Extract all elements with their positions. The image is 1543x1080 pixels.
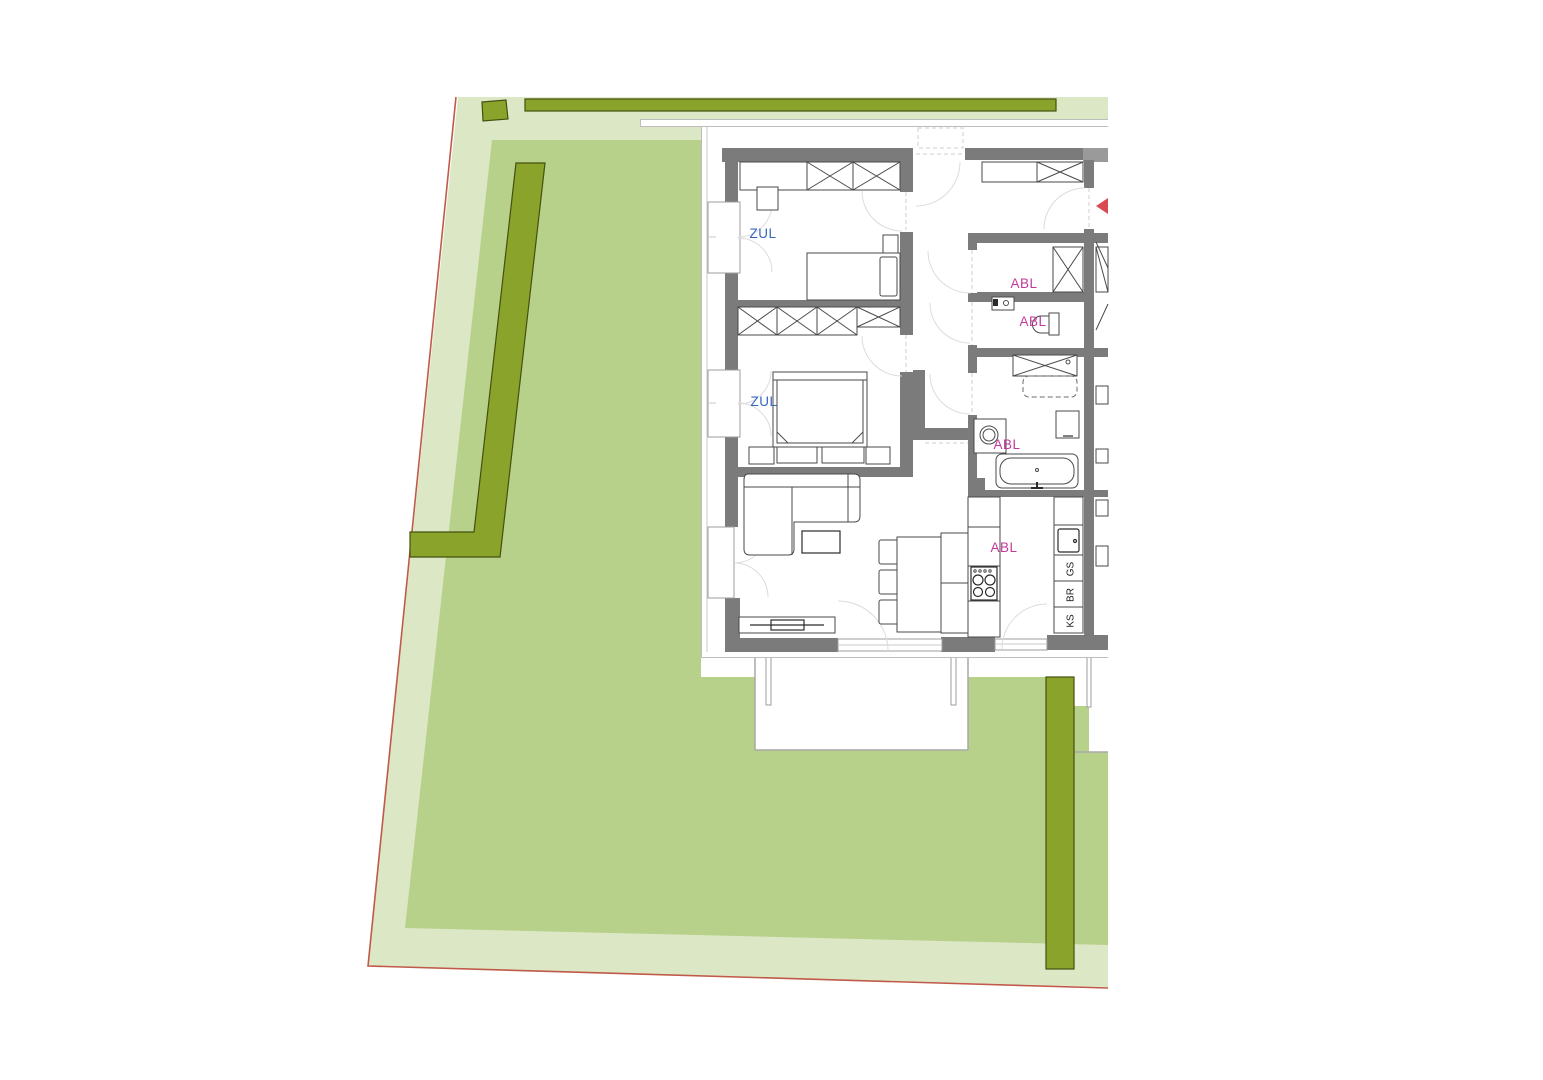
storage-room <box>1053 247 1083 292</box>
terrace <box>755 650 968 750</box>
neighbor-terrace <box>1089 650 1108 752</box>
bed-bedroom2 <box>773 372 867 447</box>
label-oven: BR <box>1066 588 1077 602</box>
label-exhaust-air-bath: ABL <box>993 437 1020 452</box>
kitchen-counter-right: GS BR KS <box>1054 497 1083 633</box>
wardrobe-bedroom1 <box>740 162 900 190</box>
desk-bedroom1 <box>757 187 778 210</box>
floor-plan-page: GS BR KS <box>0 0 1543 1080</box>
label-supply-air-bedroom2: ZUL <box>750 394 777 409</box>
neighbor-fixture <box>1096 546 1108 566</box>
dining-table <box>897 537 943 632</box>
kitchen-tall-cabinets <box>941 533 968 633</box>
label-dishwasher: GS <box>1066 561 1077 576</box>
label-exhaust-air-kitchen: ABL <box>990 540 1017 555</box>
dining-set <box>879 537 943 632</box>
neighbor-fixture <box>1096 500 1108 516</box>
wardrobe-storage <box>1053 247 1083 292</box>
terrace-divider-post <box>1087 655 1091 707</box>
label-supply-air-bedroom1: ZUL <box>749 226 776 241</box>
terrace-divider-post <box>951 655 956 705</box>
bed-bench-right <box>822 447 864 463</box>
bathtub <box>996 454 1078 488</box>
terrace-divider-post <box>766 655 771 705</box>
nightstand-bedroom1 <box>883 235 898 253</box>
label-fridge: KS <box>1066 614 1077 628</box>
neighbor-fixture <box>1096 386 1108 404</box>
label-exhaust-air-storage: ABL <box>1010 276 1037 291</box>
bed-bedroom1 <box>807 253 900 300</box>
neighbor-fixture <box>1096 449 1108 463</box>
hedge-bottom-right <box>1046 677 1074 969</box>
bed-bench-left <box>777 447 817 463</box>
tv-sideboard <box>739 617 835 633</box>
label-exhaust-air-wc: ABL <box>1019 314 1046 329</box>
hedge-top <box>525 99 1056 111</box>
wardrobe-hall <box>982 162 1083 182</box>
wc-washbasin <box>992 297 1014 310</box>
terrace-door-living <box>708 527 734 598</box>
hedge-top-corner <box>482 100 508 121</box>
bath-cabinet <box>1056 411 1079 438</box>
nightstand-left <box>749 447 774 464</box>
nightstand-right <box>866 447 890 464</box>
site-plan-drawing: GS BR KS <box>0 0 1543 1080</box>
